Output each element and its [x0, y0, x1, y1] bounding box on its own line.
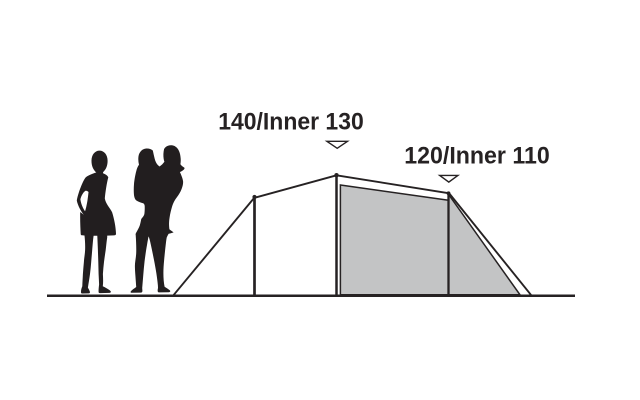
- svg-text:120/Inner 110: 120/Inner 110: [404, 142, 550, 169]
- svg-text:140/Inner 130: 140/Inner 130: [218, 109, 364, 136]
